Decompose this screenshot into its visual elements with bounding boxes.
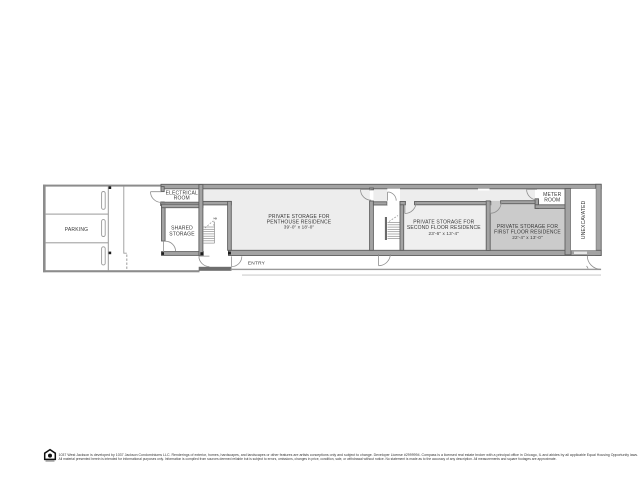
svg-text:ENTRY: ENTRY xyxy=(248,261,266,267)
svg-text:23'-6" x 13'-4": 23'-6" x 13'-4" xyxy=(429,231,460,236)
svg-text:ROOM: ROOM xyxy=(544,198,560,204)
svg-text:39'-0" x 18'-0": 39'-0" x 18'-0" xyxy=(284,224,315,229)
svg-text:ROOM: ROOM xyxy=(174,195,190,201)
svg-text:STORAGE: STORAGE xyxy=(169,231,195,237)
svg-text:All material presented herein: All material presented herein is intende… xyxy=(59,457,557,461)
svg-text:PARKING: PARKING xyxy=(65,227,89,233)
svg-text:UNEXCAVATED: UNEXCAVATED xyxy=(581,200,587,239)
svg-text:22'-4" x 13'-0": 22'-4" x 13'-0" xyxy=(512,235,543,240)
